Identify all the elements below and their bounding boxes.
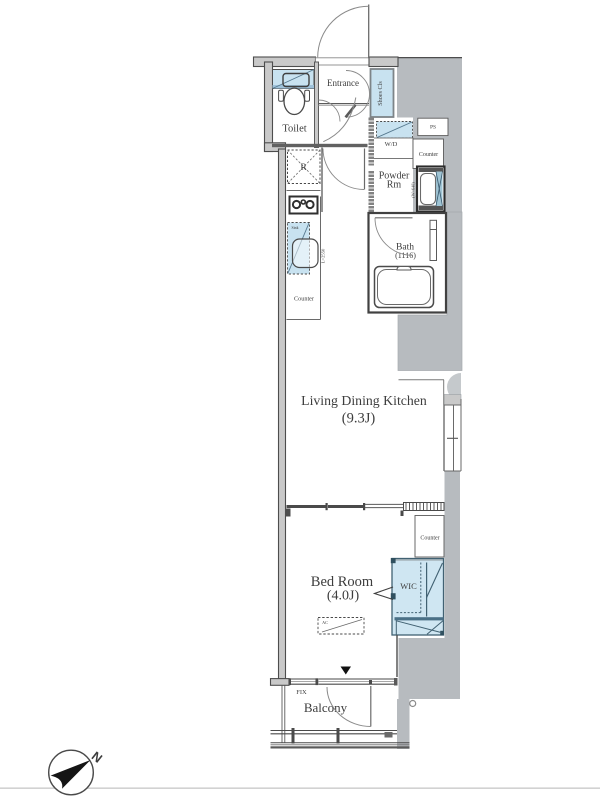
svg-text:Shoes Cls: Shoes Cls: [377, 81, 384, 106]
svg-text:AC: AC: [322, 620, 328, 625]
svg-text:Toilet: Toilet: [282, 124, 306, 135]
svg-text:FIX: FIX: [296, 689, 307, 696]
svg-text:Entrance: Entrance: [327, 78, 359, 88]
svg-text:PS: PS: [430, 125, 436, 131]
svg-text:Counter: Counter: [419, 152, 438, 158]
svg-text:W/D: W/D: [385, 141, 398, 148]
svg-text:Rm: Rm: [387, 179, 402, 190]
svg-text:Balcony: Balcony: [304, 700, 348, 715]
svg-text:R: R: [300, 163, 307, 173]
svg-text:L=2550: L=2550: [321, 248, 326, 263]
svg-text:Living Dining Kitchen: Living Dining Kitchen: [301, 393, 427, 408]
svg-text:(W=640): (W=640): [411, 182, 416, 198]
svg-text:(4.0J): (4.0J): [327, 589, 360, 604]
svg-text:WIC: WIC: [400, 581, 417, 591]
svg-text:Sink: Sink: [292, 226, 299, 230]
svg-text:Counter: Counter: [420, 536, 439, 542]
svg-text:(9.3J): (9.3J): [342, 411, 376, 427]
svg-text:Counter: Counter: [294, 296, 314, 303]
